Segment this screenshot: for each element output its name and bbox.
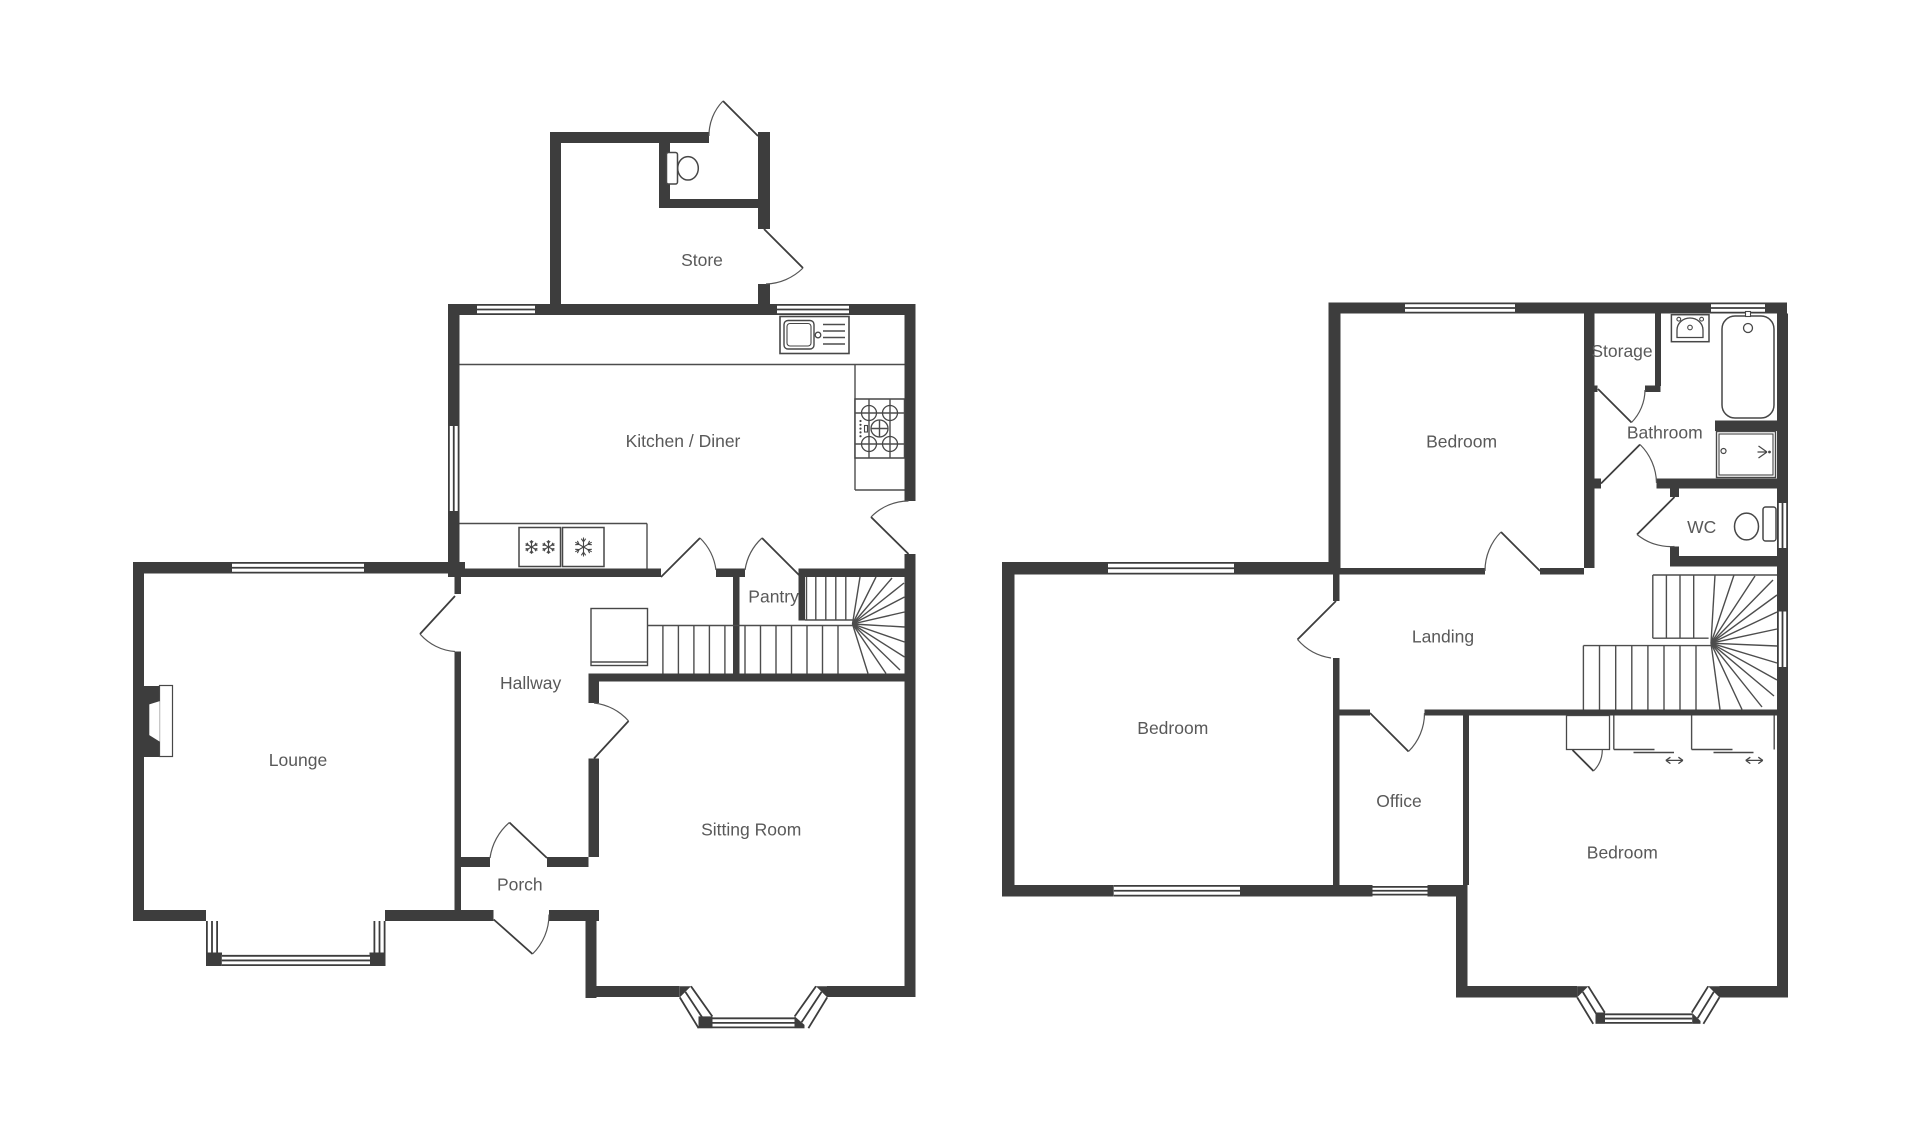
svg-text:Store: Store (681, 250, 723, 270)
svg-text:WC: WC (1687, 517, 1716, 537)
svg-text:Lounge: Lounge (269, 750, 327, 770)
svg-text:Office: Office (1376, 791, 1421, 811)
svg-text:Bedroom: Bedroom (1137, 718, 1208, 738)
svg-text:Bedroom: Bedroom (1587, 843, 1658, 863)
svg-text:Storage: Storage (1591, 341, 1652, 361)
svg-text:Sitting Room: Sitting Room (701, 820, 801, 840)
svg-text:Hallway: Hallway (500, 673, 562, 693)
svg-text:Bathroom: Bathroom (1627, 423, 1703, 443)
svg-text:Pantry: Pantry (748, 587, 799, 607)
svg-text:Landing: Landing (1412, 627, 1474, 647)
svg-text:Bedroom: Bedroom (1426, 432, 1497, 452)
svg-text:Porch: Porch (497, 875, 543, 895)
svg-text:Kitchen / Diner: Kitchen / Diner (626, 431, 741, 451)
